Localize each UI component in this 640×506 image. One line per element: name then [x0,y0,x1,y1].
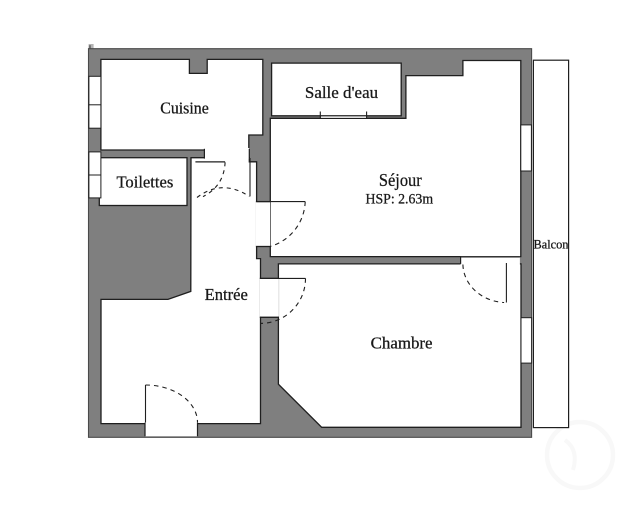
svg-text:HSP: 2.63m: HSP: 2.63m [366,191,434,207]
svg-text:Entrée: Entrée [205,285,248,304]
svg-text:Balcon: Balcon [534,238,570,252]
svg-text:Cuisine: Cuisine [160,98,209,117]
svg-text:Séjour: Séjour [379,170,422,190]
svg-text:Salle d'eau: Salle d'eau [305,83,379,102]
svg-text:Toilettes: Toilettes [116,172,173,191]
svg-text:Chambre: Chambre [371,334,433,353]
